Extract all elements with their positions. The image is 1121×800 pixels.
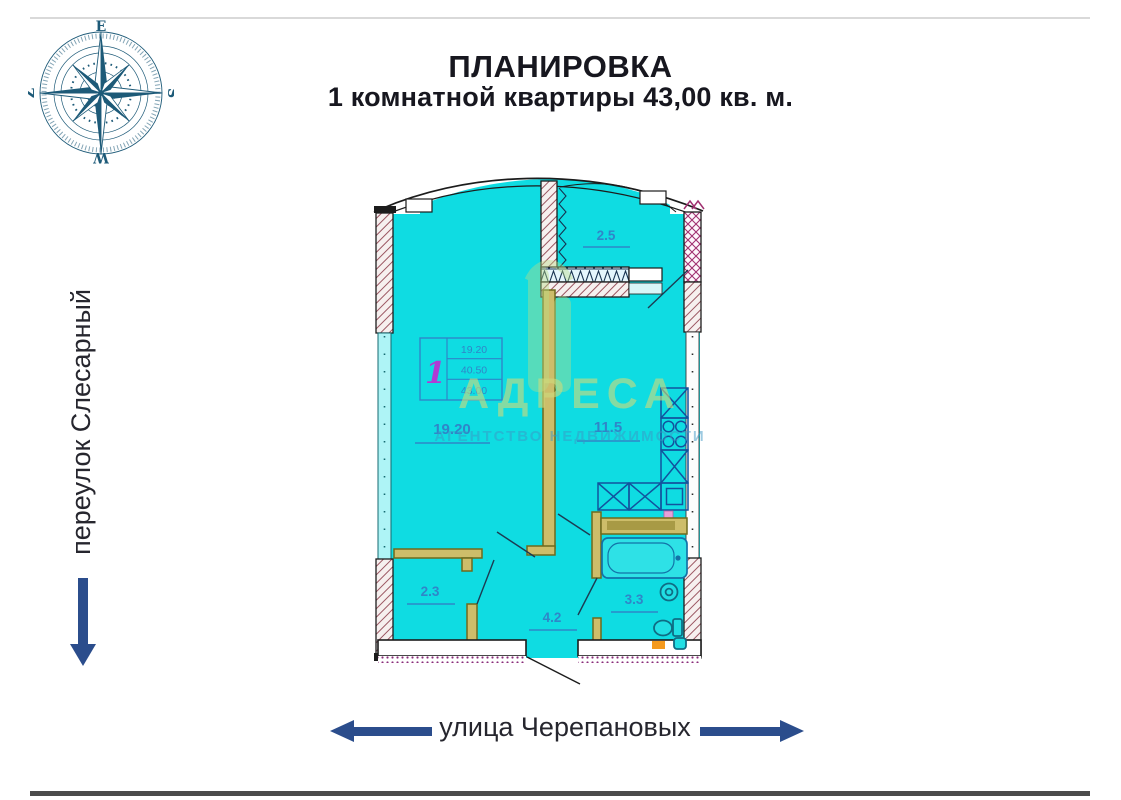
hallway-area-label: 4.2 [543,610,562,625]
left-arrow-shaft [352,727,432,736]
top-divider-line [30,17,1090,19]
entrance-door-swing [527,657,580,684]
balcony-window-sill [629,268,662,281]
compass-letter-top: E [96,20,107,35]
down-arrow-icon [70,644,96,666]
watermark-title: АДРЕСА [438,370,702,419]
closet-partition [394,549,482,558]
right-arrow-shaft [700,727,780,736]
bathroom-area-label: 3.3 [625,592,644,607]
left-street-text: переулок Слесарный [66,289,97,555]
right-arrow-icon [780,720,804,742]
left-arrow-icon [330,720,354,742]
closet-area-label: 2.3 [421,584,440,599]
toilet-tank [673,619,682,636]
compass-letter-left: Z [28,88,38,98]
compass-letter-right: S [164,88,174,98]
watermark-subtitle: АГЕНТСТВО НЕДВИЖИМОСТИ [408,428,732,445]
bottom-divider-line [30,791,1090,796]
orange-marker [652,641,665,649]
bath-sink [674,638,686,649]
toilet-bowl [654,621,672,636]
down-arrow-shaft [78,578,88,644]
bottom-street-label: улица Черепановых [425,712,705,743]
balcony-area-label: 2.5 [597,228,616,243]
compass-letter-bottom: W [93,149,110,165]
left-street-label: переулок Слесарный [52,272,110,572]
compass-star [40,32,162,154]
compass-rose-icon: E S W Z [28,20,174,166]
stamp-living-area: 19.20 [461,344,487,356]
left-window-band [378,333,391,559]
bathroom-wall [592,512,601,578]
